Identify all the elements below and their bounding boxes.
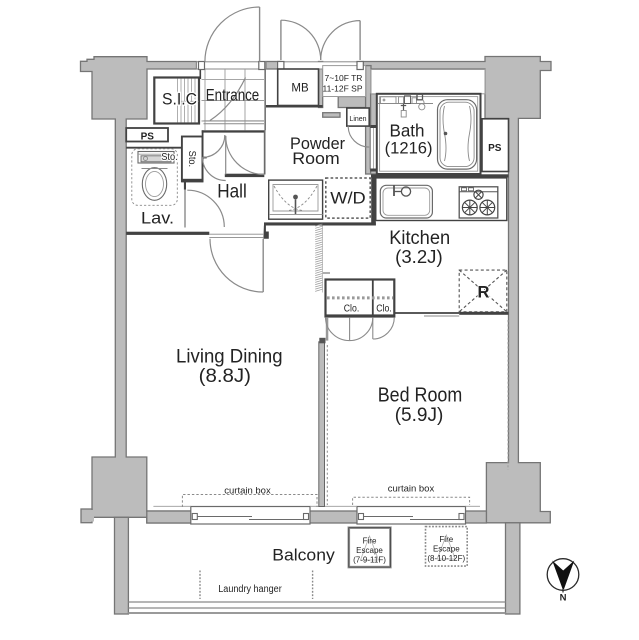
svg-text:Living Dining: Living Dining [176,346,283,368]
svg-text:curtain box: curtain box [388,484,435,495]
svg-text:Hall: Hall [217,182,247,203]
svg-text:PS: PS [488,143,502,154]
svg-text:Clo.: Clo. [344,303,360,315]
svg-text:Clo.: Clo. [376,303,392,315]
svg-text:Bath: Bath [390,120,425,140]
svg-text:W/D: W/D [330,190,366,208]
svg-text:Sto.: Sto. [161,151,178,163]
svg-text:(5.9J): (5.9J) [395,405,444,426]
svg-text:N: N [560,593,567,604]
svg-text:S.I.C: S.I.C [162,90,197,109]
svg-text:(1216): (1216) [385,138,433,157]
svg-text:Fire: Fire [363,537,377,546]
svg-text:Laundry hanger: Laundry hanger [218,584,282,595]
svg-text:MB: MB [291,83,309,95]
svg-text:Kitchen: Kitchen [389,228,450,249]
svg-text:11-12F SP: 11-12F SP [322,84,362,94]
svg-text:7~10F TR: 7~10F TR [325,73,363,83]
svg-text:(8.8J): (8.8J) [199,366,251,387]
svg-text:(8-10-12F): (8-10-12F) [427,554,465,563]
svg-text:Sto.: Sto. [186,151,198,168]
svg-text:Escape: Escape [433,545,460,554]
svg-text:Lav.: Lav. [141,210,174,228]
svg-text:Balcony: Balcony [272,546,335,565]
svg-text:(7-9-11F): (7-9-11F) [353,556,386,565]
svg-text:curtain box: curtain box [224,486,271,497]
svg-text:(3.2J): (3.2J) [395,247,443,267]
svg-text:Linen: Linen [349,116,366,123]
svg-text:Fire: Fire [439,535,453,544]
svg-text:PS: PS [141,132,155,143]
svg-text:Entrance: Entrance [206,86,260,105]
svg-text:Room: Room [292,150,340,168]
svg-text:R: R [478,284,490,302]
svg-text:Escape: Escape [356,546,383,555]
svg-text:Bed Room: Bed Room [378,385,463,407]
